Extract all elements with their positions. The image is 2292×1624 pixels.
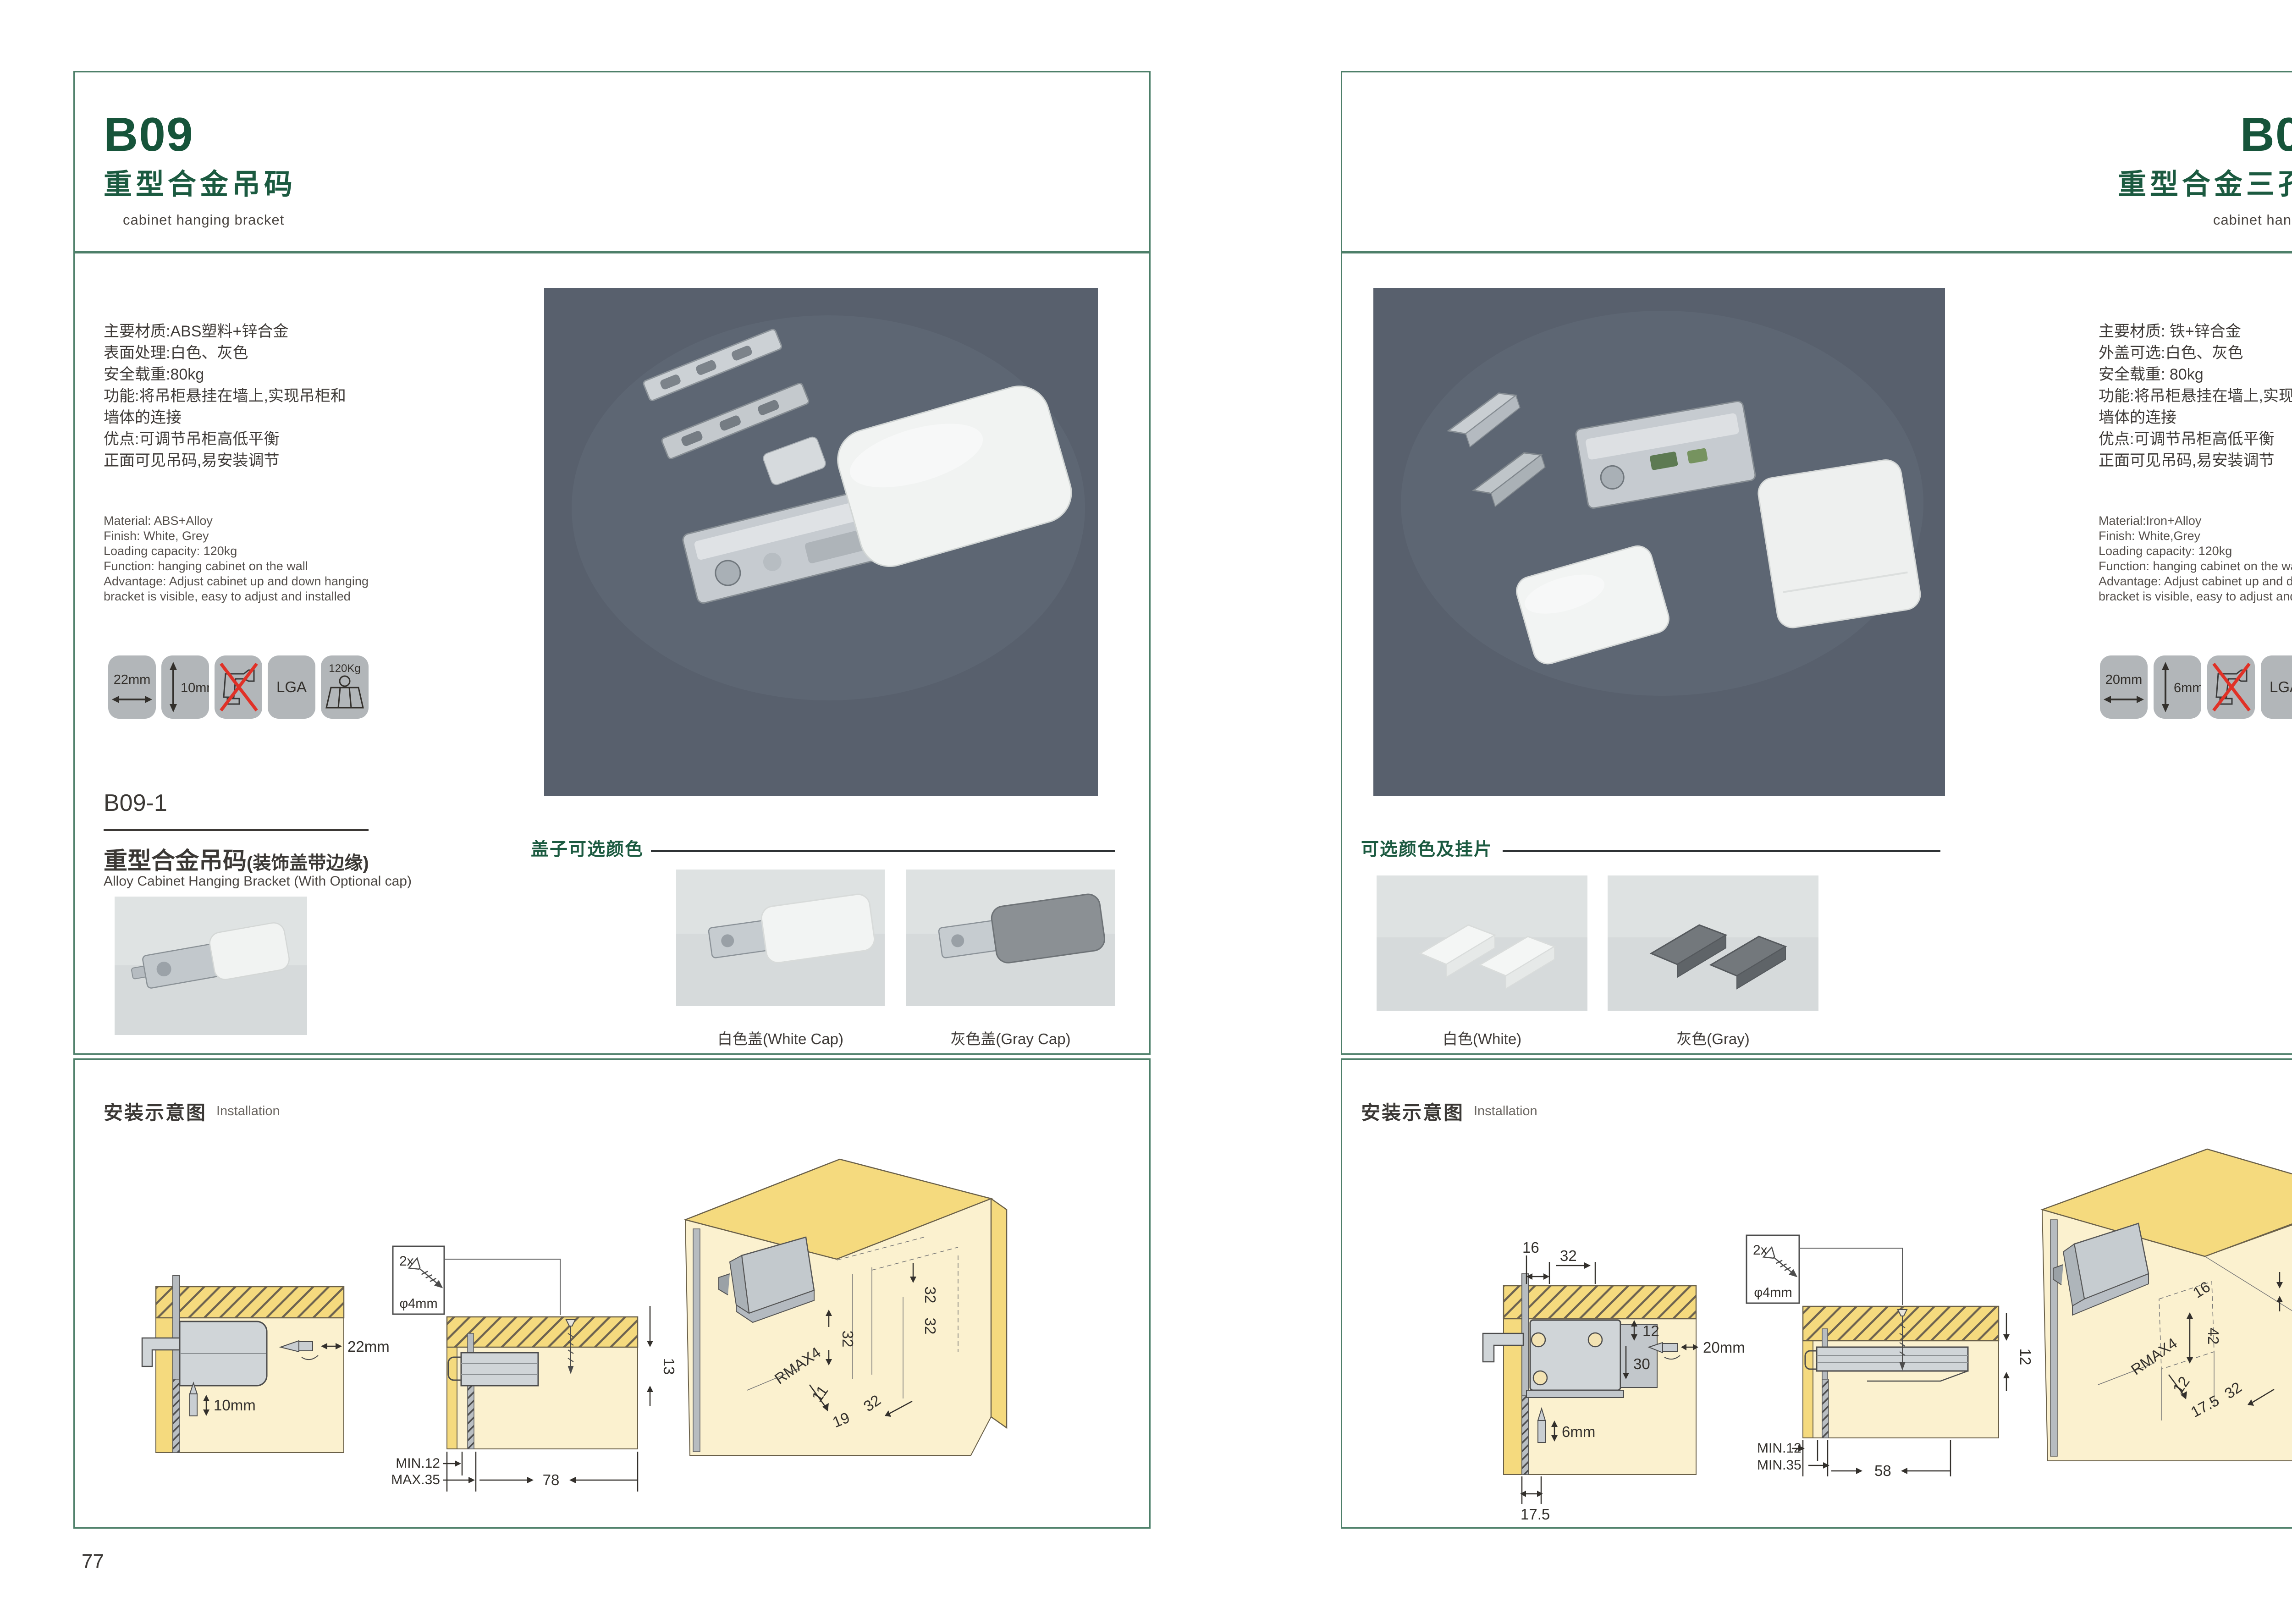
dim-label: 12 [1642,1322,1659,1339]
dim-label: 32 [922,1287,939,1304]
gray-plate-image [1608,875,1818,1011]
icon-tile-lga: LGA [2261,655,2292,719]
screw-dia-label: φ4mm [399,1296,437,1311]
icon-tile-no-drill [2207,655,2255,719]
icon-tile-width: 20mm [2100,655,2148,719]
left-sub-product-image [115,897,307,1035]
lga-label: LGA [2270,678,2292,695]
load-label: 120Kg [329,662,360,675]
left-d1-cross-section: 22mm 10mm [142,1276,390,1453]
dim-label: MIN.35 [1757,1458,1802,1473]
white-plate-image [1377,875,1587,1011]
white-cap-caption: 白色盖(White Cap) [676,1027,885,1049]
sub-code-rule [104,829,369,831]
right-d1-cross-section: 16 32 12 30 20mm 6mm 17.5 [1483,1239,1745,1523]
right-product-code: B09-3 [1925,111,2292,159]
screw-dia-label: φ4mm [1754,1285,1792,1300]
left-screw-box: 2x φ4mm [393,1246,560,1315]
left-product-title-en: cabinet hanging bracket [123,212,284,228]
left-page-number: 77 [82,1550,104,1573]
icon-tile-width: 22mm [108,655,156,719]
left-cap-section-heading: 盖子可选颜色 [531,835,644,861]
dim-label: 20mm [1703,1339,1745,1356]
dim-label: MIN.12 [396,1456,440,1471]
left-product-photo [544,288,1098,796]
right-product-title-en: cabinet hanging bracket [1925,212,2292,228]
left-sub-title: 重型合金吊码(装饰盖带边缘) [104,842,369,876]
left-sub-code: B09-1 [104,789,167,817]
right-product-photo [1373,288,1945,796]
icon-height-label: 6mm [2174,681,2201,695]
dim-label: 58 [1874,1462,1891,1479]
icon-tile-height: 10mm [161,655,209,719]
icon-tile-load: 120Kg [321,655,369,719]
icon-width-label: 20mm [2105,672,2143,687]
right-screw-box: 2x φ4mm [1747,1235,1902,1305]
icon-tile-no-drill [215,655,262,719]
left-install-diagrams: 22mm 10mm 2x φ4mm [73,1058,1148,1526]
left-sub-title-paren: (装饰盖带边缘) [247,853,369,873]
right-install-diagrams: 16 32 12 30 20mm 6mm 17.5 2x [1341,1058,2292,1526]
left-d3-perspective: 32 32 32 RMAX4 11 19 32 [685,1159,1007,1455]
dim-label: 78 [543,1471,560,1488]
dim-label: 12 [2290,1285,2292,1302]
icon-height-label: 10mm [181,681,209,695]
gray-cap-image [906,870,1115,1006]
left-sub-title-zh: 重型合金吊码 [104,848,247,875]
dim-label: 12 [2017,1349,2034,1365]
right-d3-perspective: 12 16 42 RMAX4 12 17.5 32 [2042,1149,2292,1461]
cap-render-standing [1756,458,1923,630]
gray-cap-caption: 灰色盖(Gray Cap) [906,1027,1115,1049]
dim-label: 16 [1522,1239,1539,1256]
left-specs-en: Material: ABS+Alloy Finish: White, Grey … [104,513,585,604]
dim-label: 10mm [214,1397,256,1414]
lga-label: LGA [276,678,307,695]
left-cap-section-rule [651,850,1115,852]
icon-tile-height: 6mm [2154,655,2201,719]
white-plate-caption: 白色(White) [1377,1027,1587,1049]
right-cap-section-rule [1503,850,1940,852]
dim-label: 30 [1633,1355,1650,1372]
right-cap-section-heading: 可选颜色及挂片 [1361,835,1493,861]
icon-width-label: 22mm [114,672,151,687]
gray-plate-caption: 灰色(Gray) [1608,1027,1818,1049]
right-d2-cross-section: 12 MIN.12 MIN.35 58 [1757,1306,2034,1479]
white-cap-image [676,870,885,1006]
dim-label: 32 [839,1331,856,1348]
icon-tile-lga: LGA [268,655,315,719]
dim-label: 42 [2205,1328,2222,1345]
left-specs-zh: 主要材质:ABS塑料+锌合金 表面处理:白色、灰色 安全载重:80kg 功能:将… [104,321,562,472]
left-product-code: B09 [104,111,194,159]
left-sub-title-en: Alloy Cabinet Hanging Bracket (With Opti… [104,874,412,889]
right-specs-zh: 主要材质: 铁+锌合金 外盖可选:白色、灰色 安全载重: 80kg 功能:将吊柜… [2099,321,2292,472]
dim-label: 32 [1560,1247,1577,1264]
left-product-title-zh: 重型合金吊码 [104,171,296,199]
dim-label: 13 [661,1358,678,1375]
dim-label: 22mm [347,1338,390,1355]
left-d2-cross-section: 13 MIN.12 MAX.35 78 [391,1306,678,1492]
dim-label: 17.5 [1521,1506,1550,1523]
dim-label: 6mm [1562,1423,1595,1440]
right-specs-en: Material:Iron+Alloy Finish: White,Grey L… [2099,513,2292,604]
dim-label: 32 [922,1318,939,1335]
right-product-title-zh: 重型合金三孔吊码 [1925,171,2292,199]
dim-label: MAX.35 [391,1472,440,1487]
